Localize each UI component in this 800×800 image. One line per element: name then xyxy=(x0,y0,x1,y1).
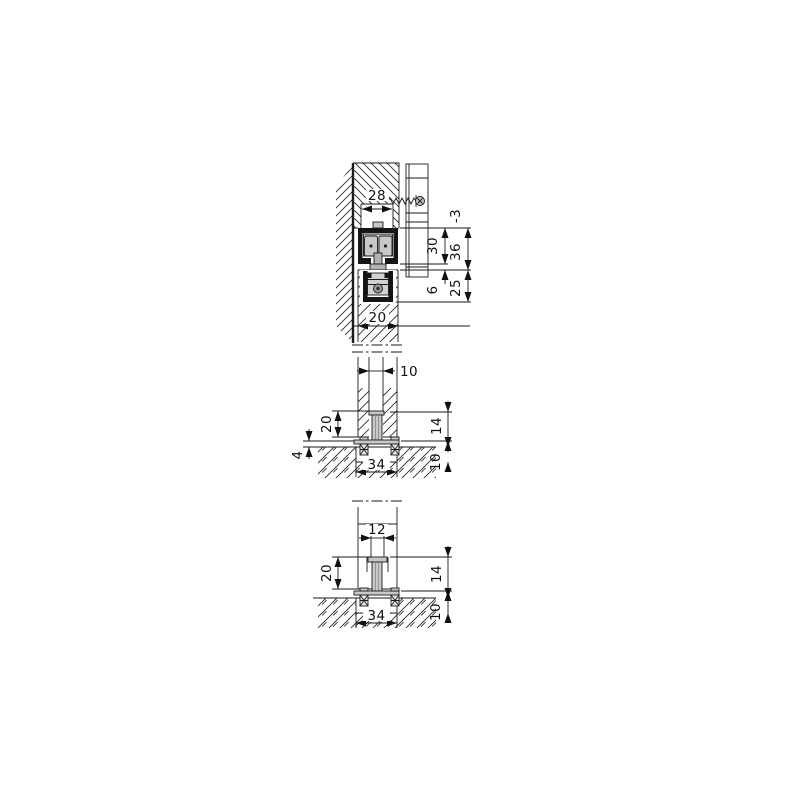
floor-anchor-right-2 xyxy=(391,595,399,606)
dim-label-14: 14 xyxy=(429,417,445,435)
dim-label-20-depth: 20 xyxy=(319,415,335,433)
dim-label-20-top: 20 xyxy=(369,310,387,326)
dim-label-12: 12 xyxy=(368,522,386,538)
dim-label-4: 4 xyxy=(290,451,306,460)
wheel-axle-right xyxy=(384,244,387,247)
wall-section xyxy=(336,163,353,343)
dim-label-20-depth-2: 20 xyxy=(319,564,335,582)
view-top-track-section: 28 xyxy=(336,163,471,352)
view-floor-guide-wood-door: 10 20 xyxy=(290,357,452,478)
track-fixing-screwhead xyxy=(373,222,383,228)
adjustment-nut-center xyxy=(376,287,379,290)
floor-anchor-left-2 xyxy=(360,595,368,606)
dim-label-34: 34 xyxy=(368,457,386,473)
floor-anchor-left xyxy=(360,444,368,455)
dim-label-30: 30 xyxy=(425,237,441,255)
sliding-door-section-drawing: 28 xyxy=(0,0,800,800)
dim-10-recess-depth: 10 xyxy=(428,439,448,471)
dim-label-36: 36 xyxy=(448,243,464,261)
dim-label-10-recess-2: 10 xyxy=(428,603,444,621)
technical-drawing-page: 28 xyxy=(0,0,800,800)
dim-label-36-tolerance: -3 xyxy=(448,209,464,223)
guide-base-plate-2 xyxy=(354,591,399,595)
door-suspension-bracket xyxy=(363,271,393,302)
carriage-stem xyxy=(374,253,382,264)
break-lines-upper xyxy=(352,345,404,352)
floor-anchor-right xyxy=(391,444,399,455)
dim-label-34-2: 34 xyxy=(368,608,386,624)
dim-label-28: 28 xyxy=(368,188,386,204)
wheel-axle-left xyxy=(369,244,372,247)
dim-label-25: 25 xyxy=(448,279,464,297)
dim-10-recess-depth-2: 10 xyxy=(428,590,448,622)
fascia-board xyxy=(406,164,428,277)
dim-10-groove: 10 xyxy=(357,364,418,380)
dim-label-6: 6 xyxy=(425,286,441,295)
dim-label-10-groove: 10 xyxy=(400,364,418,380)
view-floor-guide-12mm: 12 20 xyxy=(313,501,452,628)
dim-label-14-2: 14 xyxy=(429,565,445,583)
guide-base-plate xyxy=(354,440,399,444)
door-panel-top xyxy=(358,270,398,342)
dim-label-10-recess: 10 xyxy=(428,453,444,471)
dim-20-groove-depth-2: 20 xyxy=(319,557,372,589)
dim-20-door-thickness: 20 xyxy=(352,310,470,326)
